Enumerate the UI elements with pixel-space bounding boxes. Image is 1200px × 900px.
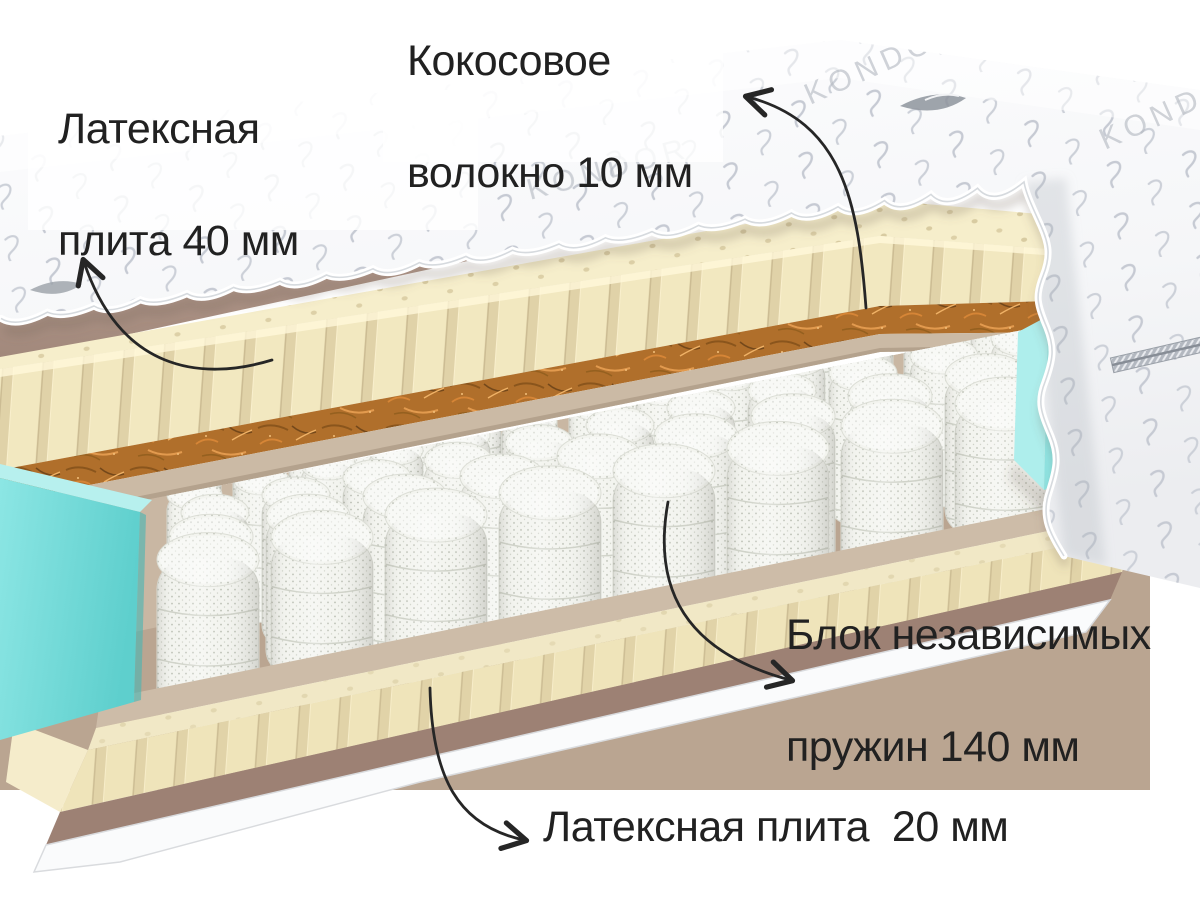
label-line: пружин 140 мм xyxy=(786,723,1080,771)
label-line: Латексная плита 20 мм xyxy=(543,803,1008,851)
label-line: Латексная xyxy=(58,105,260,153)
mattress-cutaway-figure: KONDOR KONDOR KONDOR Латексная плита 40 … xyxy=(0,0,1200,900)
label-line: волокно 10 мм xyxy=(407,149,693,197)
label-coconut-fiber-10mm: Кокосовое волокно 10 мм xyxy=(383,26,723,162)
label-spring-block-140mm: Блок независимых пружин 140 мм xyxy=(786,608,1151,776)
label-line: Кокосовое xyxy=(407,37,611,85)
label-line: плита 40 мм xyxy=(58,217,299,265)
side-support-foam-left xyxy=(0,464,152,740)
label-latex-plate-20mm: Латексная плита 20 мм xyxy=(543,800,1008,856)
label-line: Блок независимых xyxy=(786,611,1151,659)
